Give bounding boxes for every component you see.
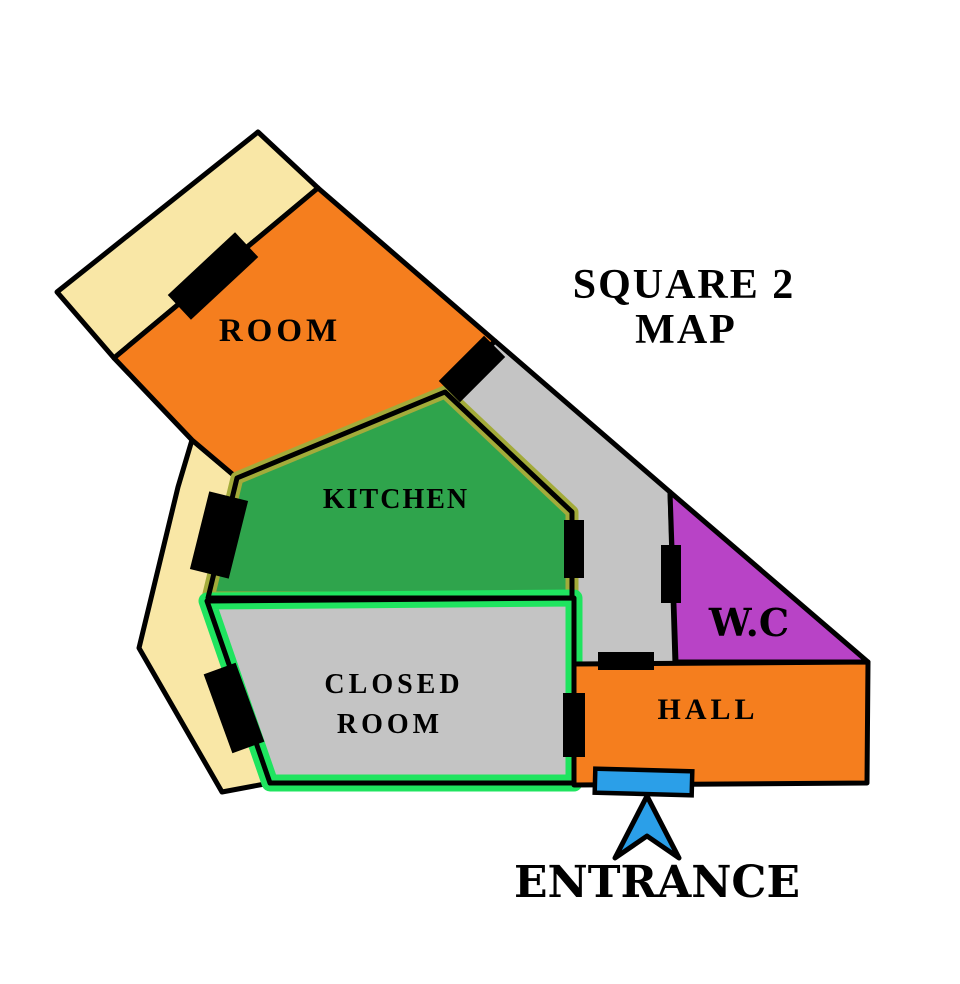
- kitchen-label: KITCHEN: [323, 484, 469, 515]
- door-corridor-wc: [661, 545, 681, 603]
- map-title-line1: SQUARE 2: [573, 262, 796, 308]
- door-kitchen-corridor: [564, 520, 584, 578]
- closed-room-label-line2: ROOM: [337, 709, 443, 740]
- wc-label: W.C: [708, 600, 789, 645]
- floor-plan-canvas: SQUARE 2 MAP ROOM KITCHEN CLOSED ROOM W.…: [0, 0, 960, 984]
- room-label: ROOM: [219, 313, 341, 349]
- entrance-label: ENTRANCE: [514, 857, 800, 908]
- map-title-line2: MAP: [635, 307, 737, 353]
- entrance-door: [595, 769, 693, 796]
- floor-plan-map: SQUARE 2 MAP ROOM KITCHEN CLOSED ROOM W.…: [0, 0, 960, 984]
- door-hall-closed-room: [563, 693, 585, 757]
- door-corridor-hall: [598, 652, 654, 670]
- hall-label: HALL: [657, 693, 758, 726]
- closed-room-label-line1: CLOSED: [324, 669, 463, 700]
